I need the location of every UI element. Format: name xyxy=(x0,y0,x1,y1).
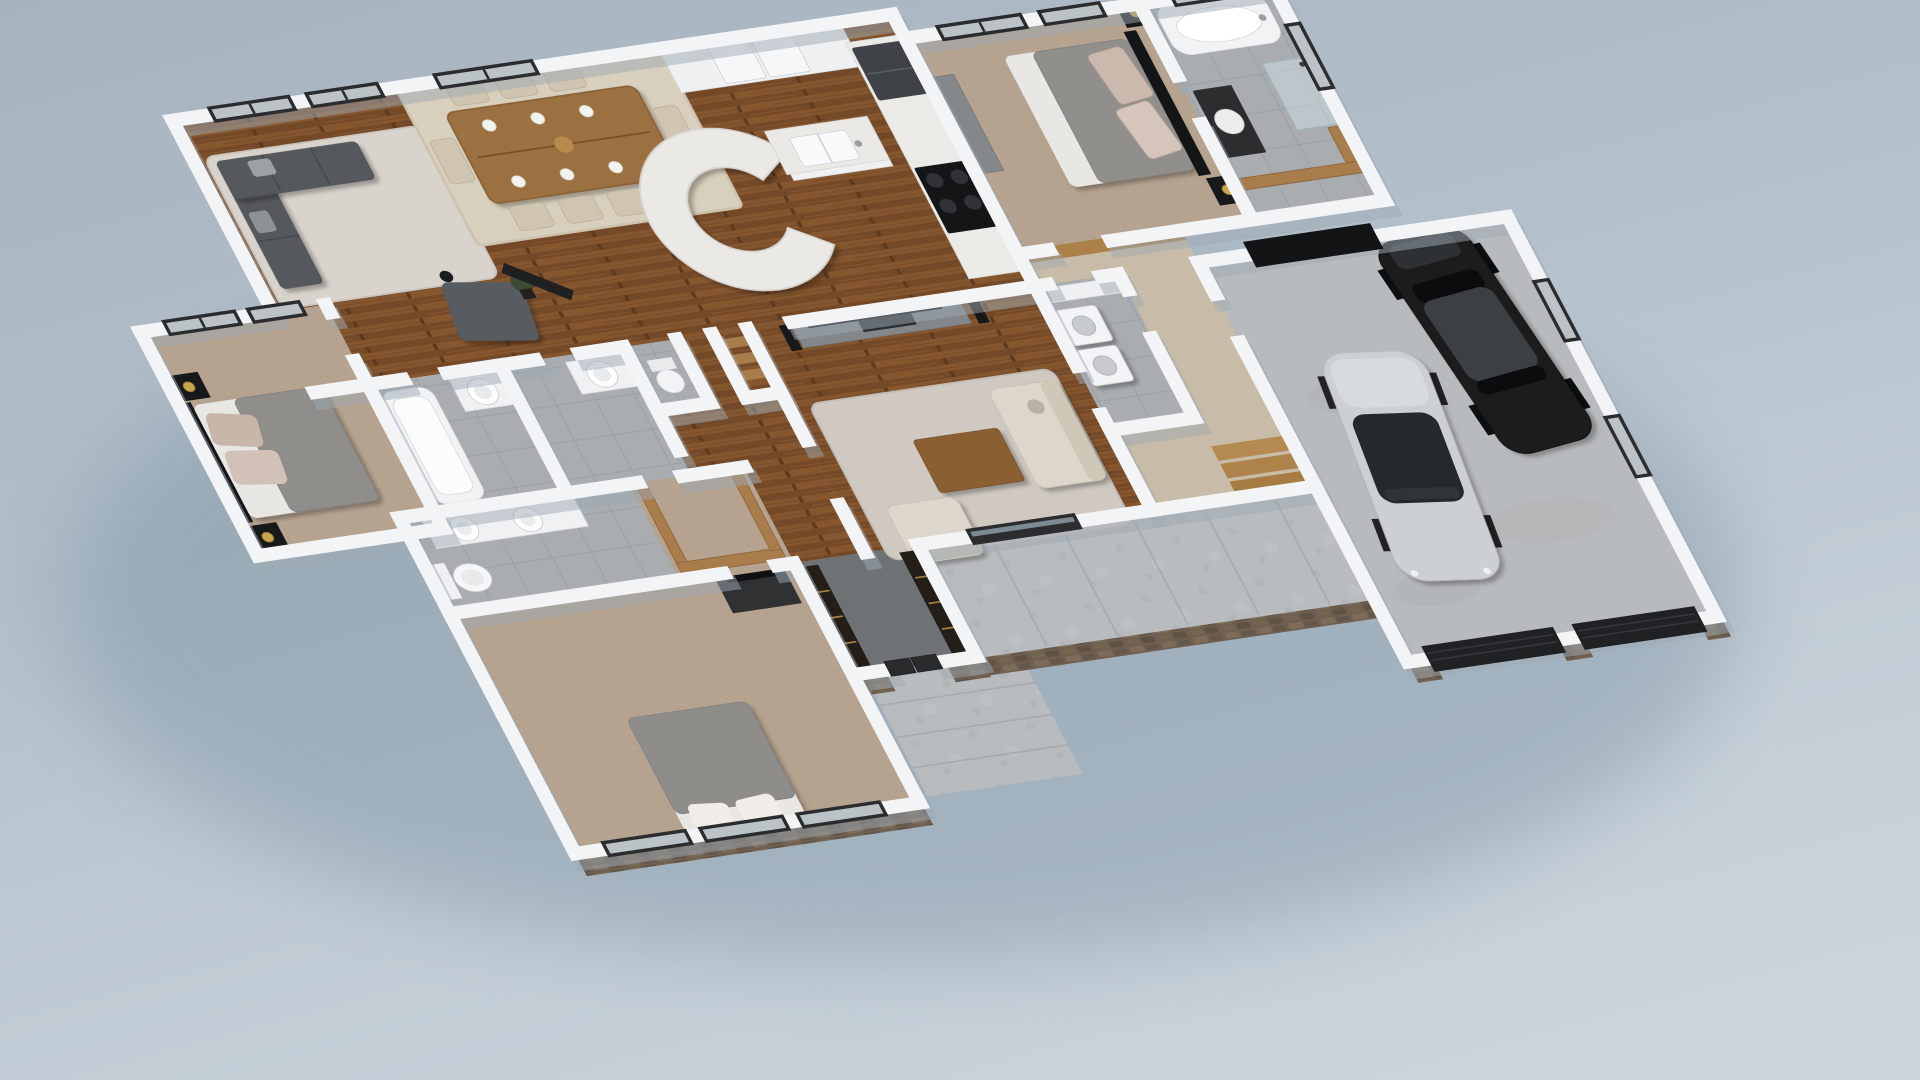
floorplan-svg xyxy=(0,0,1920,1080)
floorplan-render xyxy=(0,0,1920,1080)
